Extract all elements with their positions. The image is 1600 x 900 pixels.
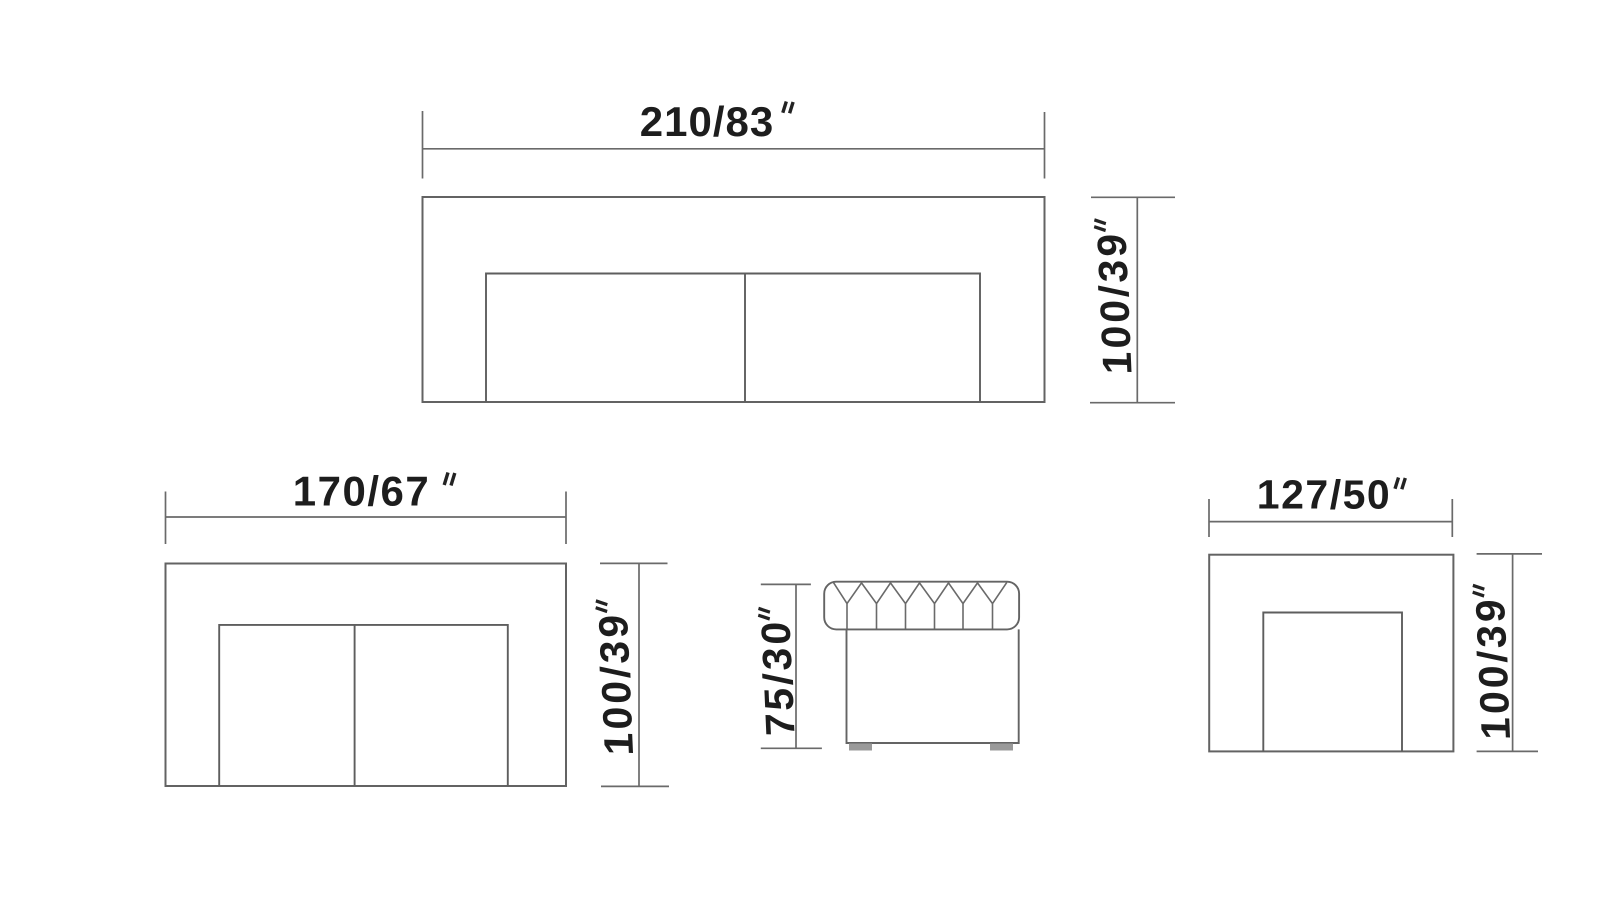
- svg-text:100/39: 100/39: [590, 611, 642, 756]
- svg-text:127/50: 127/50: [1257, 472, 1391, 518]
- svg-text:210/83: 210/83: [640, 98, 774, 145]
- svg-text:170/67: 170/67: [293, 468, 430, 515]
- svg-text:75/30: 75/30: [752, 618, 803, 737]
- svg-text:100/39: 100/39: [1088, 230, 1140, 375]
- svg-text:100/39: 100/39: [1467, 596, 1519, 741]
